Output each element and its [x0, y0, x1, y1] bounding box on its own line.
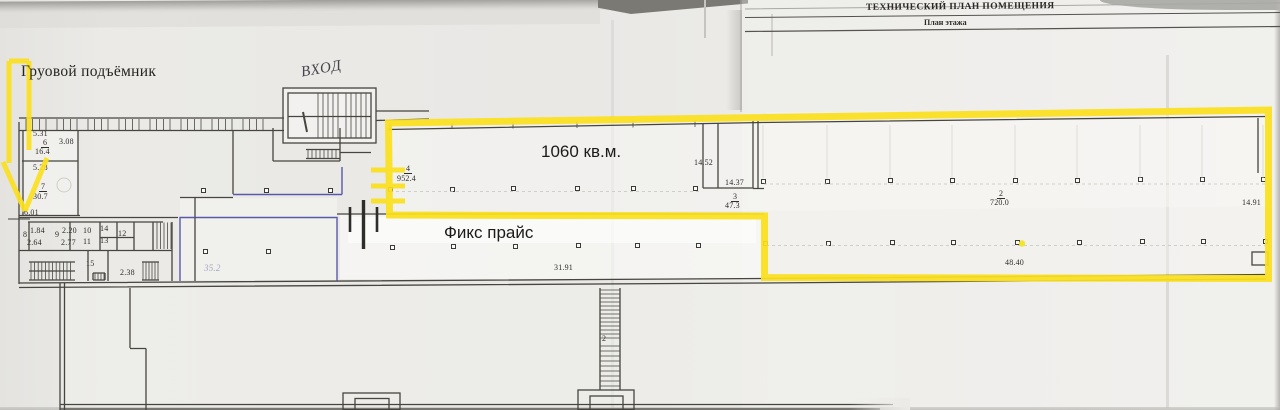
highlight-outline-1060: [389, 110, 1269, 279]
pencil-scribble: [57, 178, 71, 192]
plan-linework: [0, 0, 1280, 410]
area-label: 1060 кв.м.: [541, 142, 621, 162]
tenant-label: Фикс прайс: [444, 223, 533, 243]
blue-l-line: [233, 167, 342, 195]
title-rules: [745, 13, 1280, 57]
document-subtitle: План этажа: [924, 18, 967, 27]
yellow-dot-marker: [1019, 240, 1025, 246]
boundary-tick-marks: [350, 200, 377, 249]
column-grid-faint-lines: [763, 125, 1263, 178]
cargo-lift-label: Груовой подъёмник: [21, 63, 156, 81]
stair-window-hatching: [26, 93, 695, 386]
scan-fade: [850, 398, 910, 410]
scanned-floor-plan: 5.3163.0816.45.28730.76.0181.842.6492.20…: [0, 0, 1280, 410]
blue-outlines: [180, 167, 342, 281]
walls: [8, 88, 1268, 410]
document-title: ТЕХНИЧЕСКИЙ ПЛАН ПОМЕЩЕНИЯ: [866, 1, 1055, 13]
cargo-lift-arrow: [3, 61, 47, 211]
blue-room-rect: [180, 218, 337, 282]
